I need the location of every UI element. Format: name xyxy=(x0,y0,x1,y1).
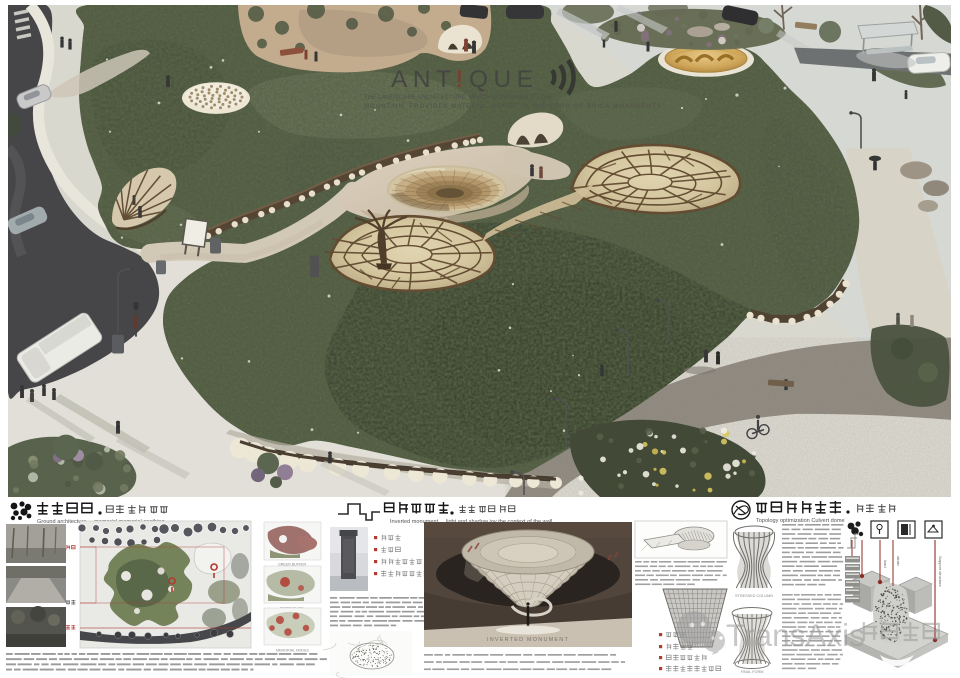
svg-text:MEMORIAL NODES: MEMORIAL NODES xyxy=(276,649,309,653)
svg-text:TransAxis: TransAxis xyxy=(726,617,865,653)
svg-text:FINAL FORM: FINAL FORM xyxy=(741,670,764,674)
svg-text:strain: strain xyxy=(896,556,901,566)
svg-text:Support structure: Support structure xyxy=(938,556,943,587)
svg-text:STRESSED COLUMN: STRESSED COLUMN xyxy=(735,594,773,598)
svg-text:Topology optimization Cul: Topology optimization Culvert dome xyxy=(756,518,845,524)
svg-text:load: load xyxy=(883,560,888,568)
svg-text:INVERTED MONUMENT: INVERTED MONUMENT xyxy=(487,637,569,643)
